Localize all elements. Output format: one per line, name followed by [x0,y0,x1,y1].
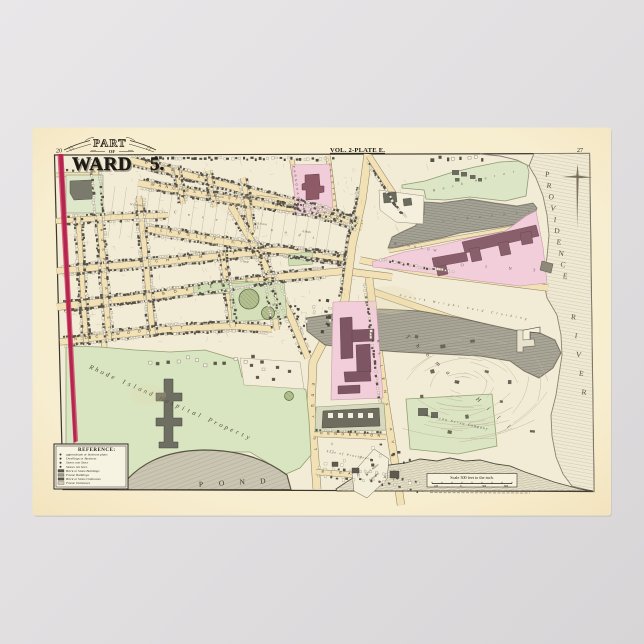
svg-text:O: O [460,262,463,267]
svg-text:PART: PART [93,138,127,150]
svg-text:M: M [199,255,203,259]
svg-text:OF: OF [109,149,116,154]
svg-text:5.: 5. [150,154,164,175]
svg-text:VOL. 2-PLATE E.: VOL. 2-PLATE E. [330,147,385,154]
svg-text:P: P [199,480,204,489]
svg-text:O: O [173,290,177,294]
svg-text:M: M [275,203,279,207]
svg-text:300: 300 [482,485,487,488]
svg-text:27: 27 [577,148,583,154]
svg-text:O: O [137,329,140,333]
svg-text:T: T [103,277,107,279]
svg-text:Scale 300 feet to the inch.: Scale 300 feet to the inch. [450,475,494,480]
svg-text:O: O [127,331,130,335]
svg-text:M: M [151,182,155,186]
svg-text:T: T [107,326,111,328]
svg-text:N: N [508,266,511,271]
svg-text:600: 600 [504,485,509,488]
svg-text:O: O [370,433,373,437]
svg-text:20: 20 [56,149,62,155]
svg-text:O: O [85,336,88,340]
svg-text:Frame Outhouses: Frame Outhouses [65,481,91,485]
svg-text:100: 100 [434,485,439,488]
svg-text:WARD: WARD [72,154,132,175]
